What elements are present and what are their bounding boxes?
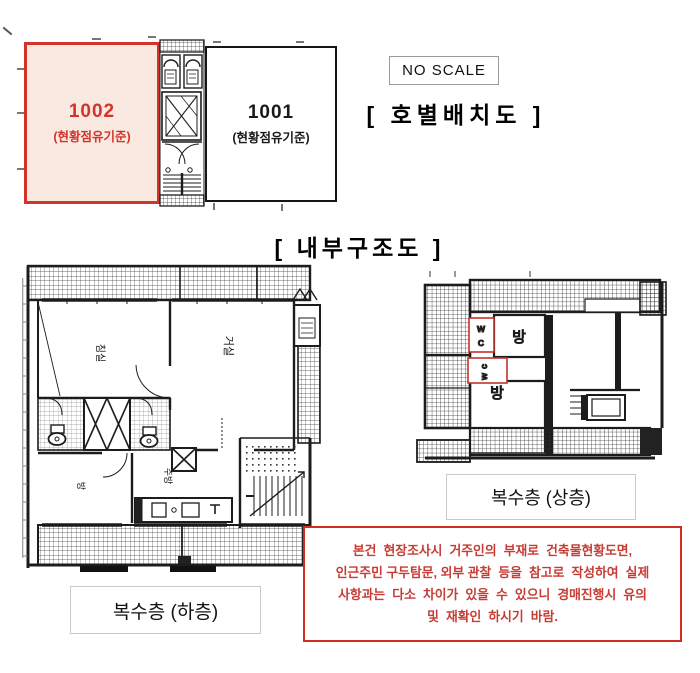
room-top-label: 방 bbox=[512, 329, 526, 346]
upper-plan-label: 복수층 (상층) bbox=[491, 484, 591, 510]
left-balcony-strip bbox=[425, 285, 470, 428]
right-balcony-strip bbox=[298, 346, 320, 443]
page-canvas: 1002 (현황점유기준) bbox=[0, 0, 700, 673]
unit-1002-box: 1002 (현황점유기준) bbox=[24, 42, 160, 204]
lower-plan-label: 복수층 (하층) bbox=[113, 597, 218, 624]
tick-mark bbox=[92, 38, 101, 40]
label-living: 거실 bbox=[222, 336, 235, 356]
lower-plan-label-box: 복수층 (하층) bbox=[70, 586, 261, 634]
tick-mark bbox=[213, 203, 215, 210]
elevator-shaft bbox=[162, 92, 201, 140]
stair-detail bbox=[570, 390, 640, 420]
building-core-drawing bbox=[159, 38, 205, 208]
no-scale-label: NO SCALE bbox=[402, 62, 486, 79]
label-bedroom: 침실 bbox=[94, 344, 106, 362]
wc-rotated-label: wc bbox=[479, 360, 489, 381]
tick-mark bbox=[296, 41, 304, 43]
tick-mark bbox=[17, 68, 24, 70]
room-bottom-label: 방 bbox=[490, 385, 504, 402]
label-small-room: 방 bbox=[76, 482, 86, 490]
unit-1002-number: 1002 bbox=[69, 101, 115, 123]
staircase bbox=[240, 438, 310, 528]
duct-closets bbox=[162, 55, 202, 88]
disclaimer-box: 본건 현장조사시 거주인의 부재로 건축물현황도면, 인근주민 구두탐문, 외부… bbox=[303, 526, 682, 642]
disclaimer-line: 사항과는 다소 차이가 있을 수 있으니 경매진행시 유의 bbox=[338, 584, 647, 606]
stair-run bbox=[163, 173, 201, 195]
room-living bbox=[172, 300, 294, 450]
top-balcony bbox=[28, 266, 310, 304]
disclaimer-line: 인근주민 구두탐문, 외부 관찰 등을 참고로 작성하여 실제 bbox=[336, 562, 649, 584]
wc-label-line2: C bbox=[478, 338, 484, 348]
bathroom-band bbox=[38, 398, 170, 450]
lower-floor-plan-drawing: 침실 거실 방 주방 bbox=[22, 258, 322, 580]
disclaimer-line: 본건 현장조사시 거주인의 부재로 건축물현황도면, bbox=[353, 540, 632, 562]
wc-label-line1: W bbox=[477, 324, 486, 334]
tick-mark bbox=[3, 27, 13, 36]
bottom-balcony bbox=[28, 525, 310, 572]
hall-doors bbox=[162, 142, 202, 172]
top-balcony-strip bbox=[470, 280, 666, 315]
tick-mark bbox=[281, 204, 283, 211]
unit-layout-plan: 1002 (현황점유기준) bbox=[0, 0, 360, 230]
disclaimer-line: 및 재확인 하시기 바람. bbox=[427, 606, 558, 628]
upper-floor-plan-drawing: W C wc 방 방 bbox=[415, 268, 673, 468]
bottom-balcony-strip bbox=[417, 428, 662, 462]
upper-plan-label-box: 복수층 (상층) bbox=[446, 474, 636, 520]
unit-1001-caption: (현황점유기준) bbox=[232, 127, 309, 146]
tick-mark bbox=[17, 168, 24, 170]
unit-1002-caption: (현황점유기준) bbox=[53, 126, 130, 145]
tick-mark bbox=[213, 41, 221, 43]
tick-mark bbox=[17, 112, 24, 114]
label-kitchen: 주방 bbox=[163, 468, 173, 485]
tick-mark bbox=[148, 36, 156, 38]
unit-1001-number: 1001 bbox=[248, 102, 294, 124]
unit-1001-box: 1001 (현황점유기준) bbox=[205, 46, 337, 202]
no-scale-box: NO SCALE bbox=[389, 56, 499, 85]
unit-layout-title: [ 호별배치도 ] bbox=[346, 96, 566, 130]
duct-x-box bbox=[172, 448, 196, 471]
interior-wall bbox=[615, 313, 621, 391]
